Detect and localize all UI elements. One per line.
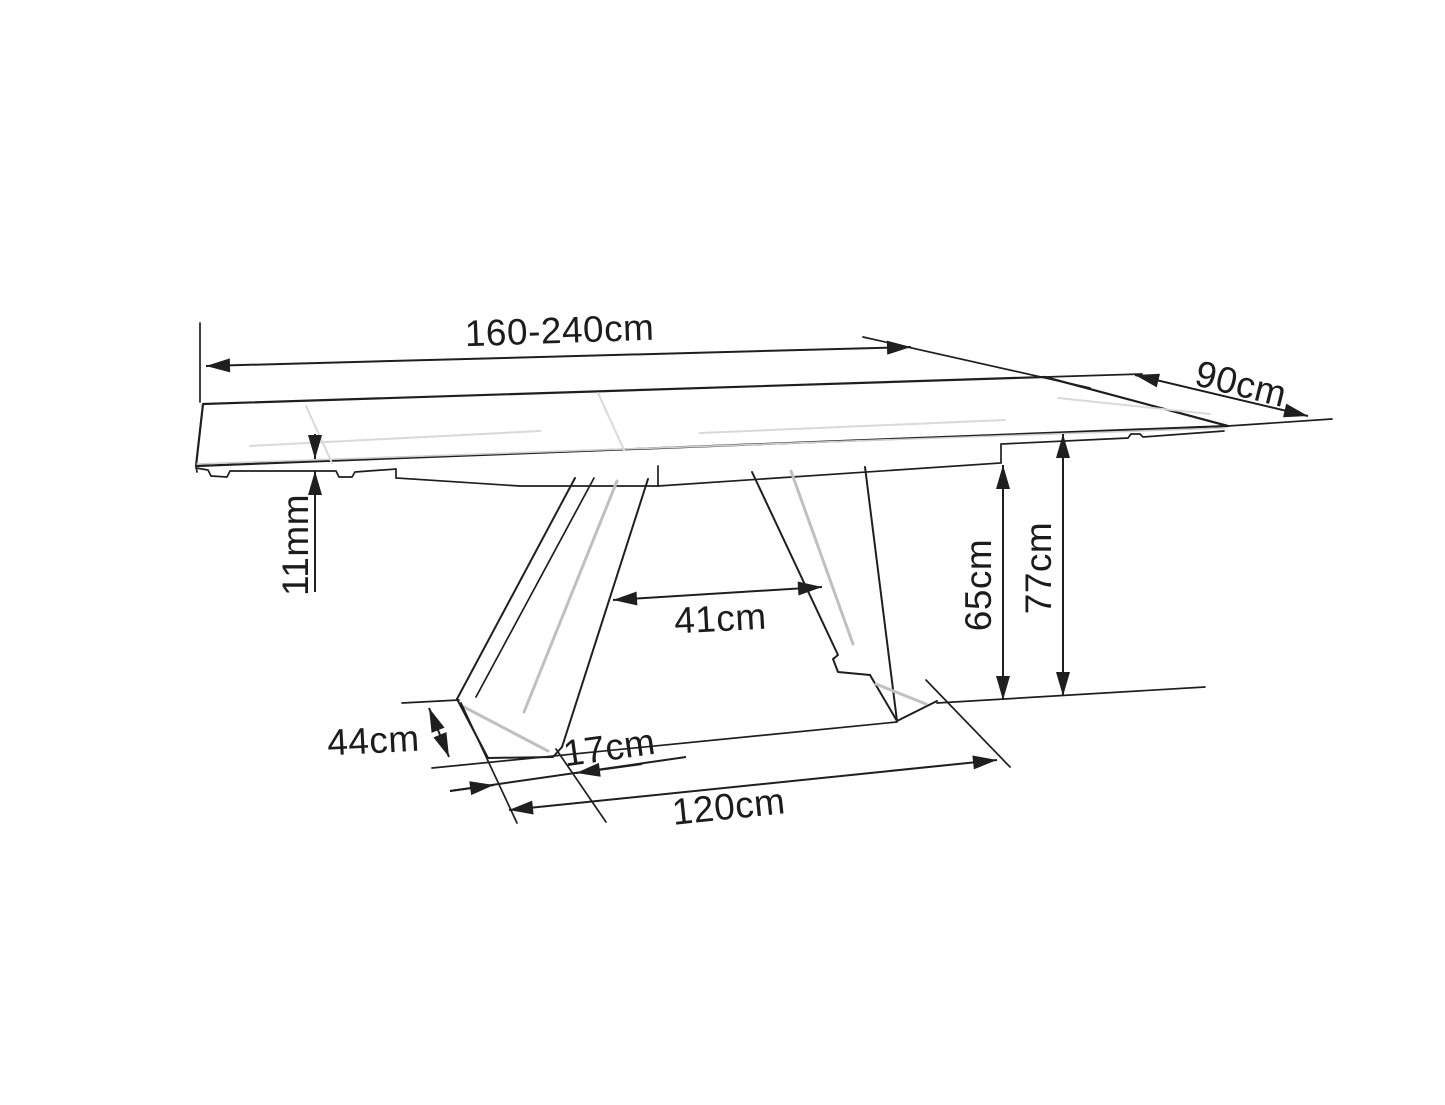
dimension-diagram-page: 160-240cm 90cm 11mm 41cm 65cm 77cm 44cm … [0, 0, 1445, 1105]
dim-foot-length-label: 44cm [326, 718, 421, 764]
dim-foot-width-arrow-left [450, 785, 494, 791]
dim-base-span-label: 120cm [670, 780, 787, 833]
tabletop-top-face [196, 377, 1228, 466]
dim-underframe-height-label: 65cm [958, 539, 999, 631]
dim-leg-clearance-label: 41cm [673, 596, 768, 642]
left-foot-top-shading [464, 707, 548, 751]
left-leg-outer-edge [457, 478, 575, 699]
dim-depth-label: 90cm [1191, 353, 1291, 415]
tabletop [196, 374, 1332, 472]
underframe-left-section [196, 468, 658, 486]
dim-thickness-label: 11mm [275, 494, 316, 596]
left-leg [457, 478, 648, 758]
right-foot-top-shading [876, 684, 926, 704]
right-leg-shading [791, 471, 853, 644]
table-dimension-diagram: 160-240cm 90cm 11mm 41cm 65cm 77cm 44cm … [0, 0, 1445, 1105]
right-leg-right-edge [865, 467, 897, 721]
right-leg [752, 467, 937, 721]
dim-foot-width-label: 17cm [561, 721, 658, 774]
dim-foot-length-line [429, 708, 449, 757]
dim-table-height-label: 77cm [1018, 522, 1059, 614]
tabletop-back-edge-extension [1045, 374, 1142, 377]
ext-line-foot-top [402, 700, 459, 703]
ext-line-base-right [926, 680, 1010, 767]
tabletop-front-edge-extension [1228, 419, 1332, 426]
floor-line-right [937, 687, 1205, 703]
left-leg-shading [524, 481, 617, 712]
left-leg-inner-edge [562, 479, 648, 747]
left-leg-outer-edge-2 [476, 478, 594, 697]
dim-length-label: 160-240cm [464, 307, 655, 355]
